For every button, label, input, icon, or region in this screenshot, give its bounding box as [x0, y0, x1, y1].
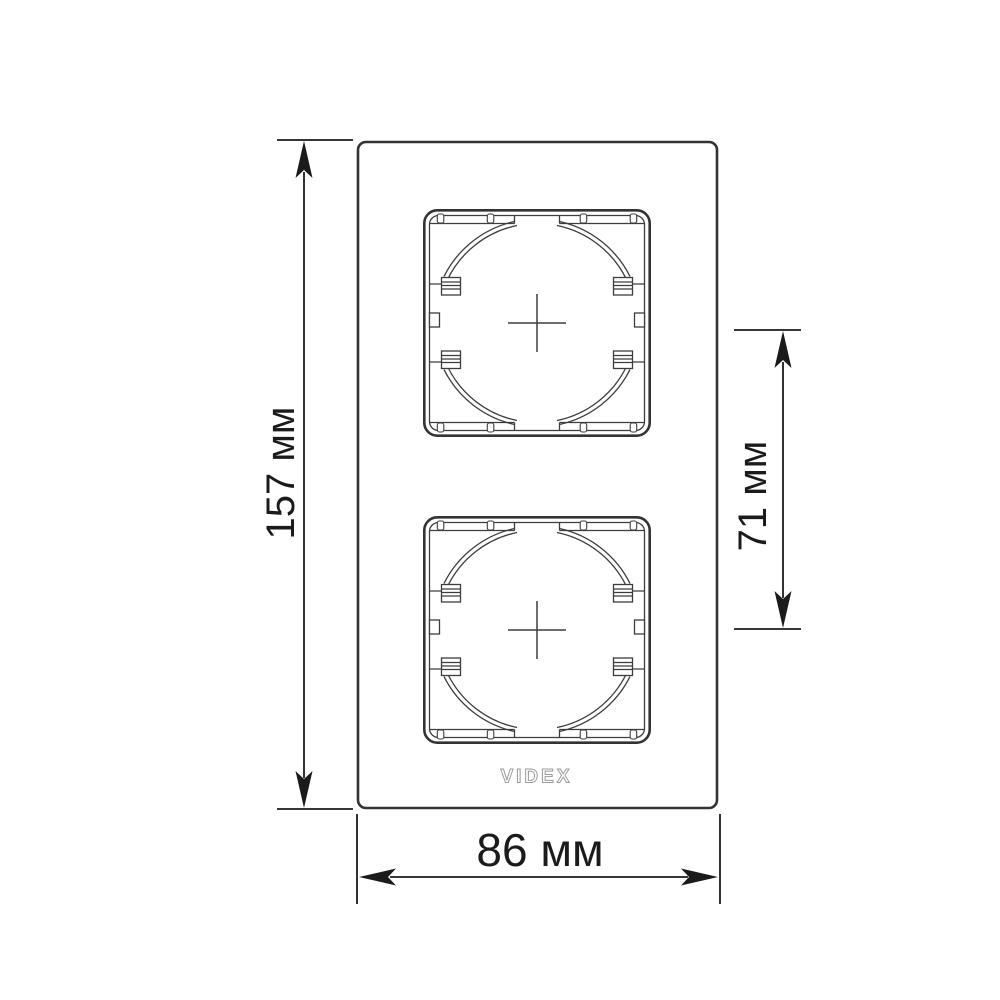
- drawing-svg: VIDEX 157 мм 71 мм 86 мм: [0, 0, 1000, 1000]
- dimension-spacing: 71 мм: [731, 330, 801, 629]
- dimensional-drawing: VIDEX 157 мм 71 мм 86 мм: [0, 0, 1000, 1000]
- dimension-height: 157 мм: [259, 140, 353, 809]
- socket-opening-top: [424, 210, 649, 435]
- dimension-spacing-label: 71 мм: [731, 441, 775, 552]
- faceplate: VIDEX: [358, 142, 717, 808]
- brand-logo: VIDEX: [500, 767, 572, 788]
- dimension-width: 86 мм: [357, 814, 720, 904]
- dimension-height-label: 157 мм: [259, 407, 303, 540]
- socket-opening-bottom: [424, 517, 649, 742]
- dimension-width-label: 86 мм: [476, 824, 603, 876]
